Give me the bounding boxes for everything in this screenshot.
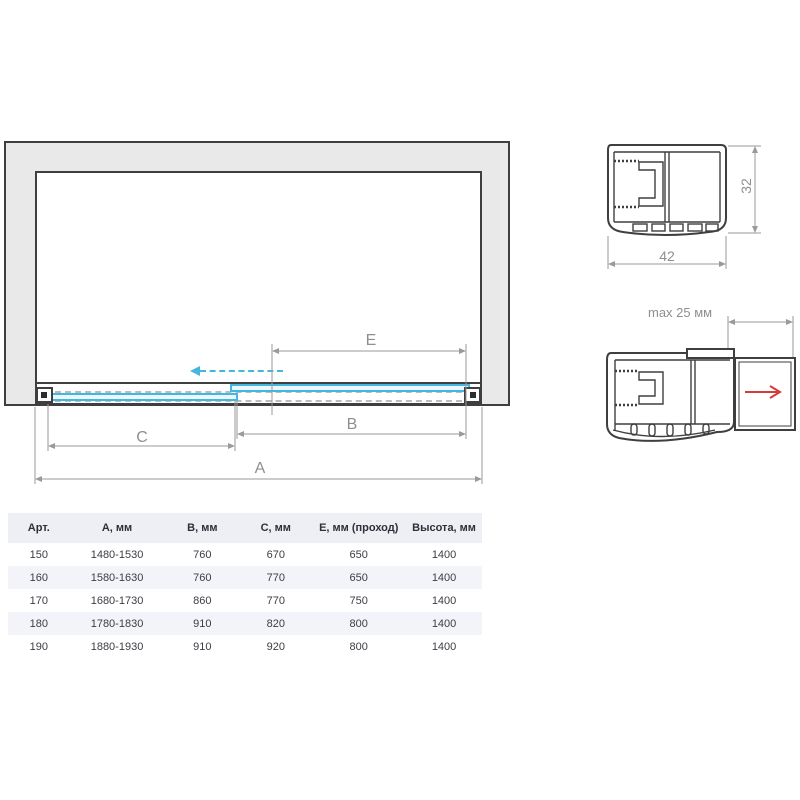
cell: 650 — [311, 566, 406, 589]
cell: 1480-1530 — [70, 543, 165, 566]
table-row: 160 1580-1630 760 770 650 1400 — [8, 566, 482, 589]
cell: 1400 — [406, 589, 482, 612]
cell: 1680-1730 — [70, 589, 165, 612]
cell: 150 — [8, 543, 70, 566]
cell: 1780-1830 — [70, 612, 165, 635]
col-header-c: С, мм — [240, 513, 311, 543]
size-table: Арт. А, мм В, мм С, мм Е, мм (проход) Вы… — [8, 513, 482, 658]
dim-label-A: A — [252, 461, 268, 477]
cell: 800 — [311, 635, 406, 658]
cell: 160 — [8, 566, 70, 589]
cell: 1400 — [406, 612, 482, 635]
cell: 1400 — [406, 566, 482, 589]
cell: 860 — [164, 589, 240, 612]
size-table-header-row: Арт. А, мм В, мм С, мм Е, мм (проход) Вы… — [8, 513, 482, 543]
cell: 1400 — [406, 543, 482, 566]
dim-label-42: 42 — [653, 249, 681, 263]
cell: 1880-1930 — [70, 635, 165, 658]
cell: 170 — [8, 589, 70, 612]
dim-label-B: B — [344, 417, 360, 433]
cell: 770 — [240, 589, 311, 612]
cell: 920 — [240, 635, 311, 658]
dim-label-32: 32 — [739, 172, 753, 200]
cell: 180 — [8, 612, 70, 635]
table-row: 170 1680-1730 860 770 750 1400 — [8, 589, 482, 612]
profile-adjustment-section — [595, 300, 800, 450]
cell: 910 — [164, 612, 240, 635]
cell: 650 — [311, 543, 406, 566]
profile-cross-section-42x32 — [595, 138, 775, 274]
cell: 750 — [311, 589, 406, 612]
col-header-b: В, мм — [164, 513, 240, 543]
cell: 1400 — [406, 635, 482, 658]
table-row: 190 1880-1930 910 920 800 1400 — [8, 635, 482, 658]
col-header-art: Арт. — [8, 513, 70, 543]
cell: 820 — [240, 612, 311, 635]
cell: 1580-1630 — [70, 566, 165, 589]
col-header-e: Е, мм (проход) — [311, 513, 406, 543]
col-header-height: Высота, мм — [406, 513, 482, 543]
cell: 670 — [240, 543, 311, 566]
cell: 760 — [164, 543, 240, 566]
cell: 190 — [8, 635, 70, 658]
col-header-a: А, мм — [70, 513, 165, 543]
cell: 800 — [311, 612, 406, 635]
dim-label-E: E — [363, 333, 379, 349]
profile-top-lip — [687, 349, 734, 358]
cell: 760 — [164, 566, 240, 589]
cell: 770 — [240, 566, 311, 589]
dim-label-max25: max 25 мм — [648, 305, 712, 320]
table-row: 150 1480-1530 760 670 650 1400 — [8, 543, 482, 566]
extension-piece — [735, 358, 795, 430]
table-row: 180 1780-1830 910 820 800 1400 — [8, 612, 482, 635]
dim-label-C: C — [134, 430, 150, 446]
cell: 910 — [164, 635, 240, 658]
